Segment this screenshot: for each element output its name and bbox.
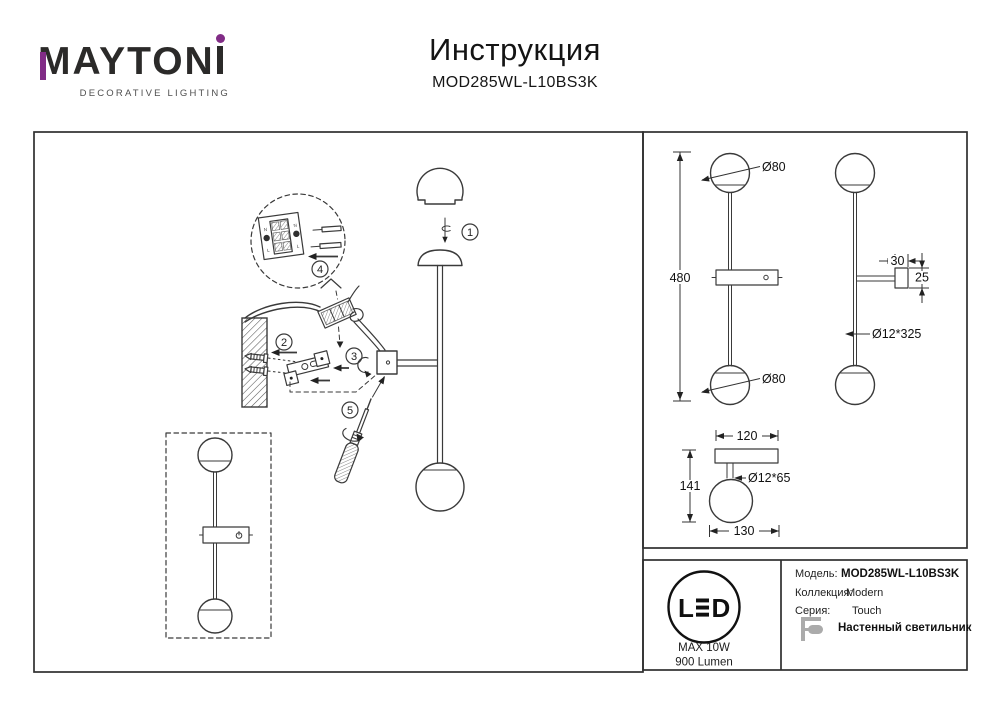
dimension-front-view: 480 Ø80 Ø80 — [666, 152, 786, 405]
collection-row-label: Коллекция: — [795, 587, 853, 599]
dim-rod-label: Ø12*325 — [872, 327, 921, 341]
dimension-side-view: 30 25 Ø12*325 — [836, 154, 932, 405]
dim-stem-label: Ø12*65 — [748, 471, 790, 485]
model-row-value: MOD285WL-L10BS3K — [841, 568, 960, 580]
bracket-slide-path — [290, 374, 377, 392]
led-letter-e-bars — [696, 599, 709, 617]
series-row-value: Touch — [852, 605, 881, 617]
dim-height-label: 480 — [670, 271, 691, 285]
wire-stripped-2 — [311, 242, 341, 249]
wall-lamp-icon — [801, 617, 823, 641]
dim-sphere-top-label: Ø80 — [762, 160, 786, 174]
rotate-lock-icon — [358, 358, 372, 378]
step-1-label: 1 — [467, 227, 473, 239]
lamp-shade-drawing — [417, 168, 463, 204]
collection-row-value: Modern — [846, 587, 883, 599]
model-row-label: Модель: — [795, 568, 838, 580]
max-power-label: MAX 10W — [678, 642, 730, 654]
rotate-shade-icon — [442, 218, 450, 243]
step-4-label: 4 — [317, 264, 323, 276]
step-5-label: 5 — [347, 405, 353, 417]
wall-section — [242, 318, 298, 407]
step-1-badge: 1 — [462, 224, 478, 240]
product-type-label: Настенный светильник — [838, 622, 972, 634]
dim-box-width-label: 30 — [891, 254, 905, 268]
terminal-n-label: N — [264, 227, 268, 232]
led-letter-d: D — [712, 593, 731, 623]
dim-plate-width-label: 120 — [737, 429, 758, 443]
product-info-table: Модель: MOD285WL-L10BS3K Коллекция: Mode… — [795, 568, 972, 641]
led-letter-l: L — [678, 593, 694, 623]
instruction-sheet-drawing: 1 — [0, 0, 1000, 707]
step-3-label: 3 — [351, 351, 357, 363]
lamp-body-drawing — [377, 250, 464, 511]
step-2-label: 2 — [281, 337, 287, 349]
series-row-label: Серия: — [795, 605, 830, 617]
step-5-badge: 5 — [342, 402, 358, 418]
finished-lamp-preview — [166, 433, 271, 638]
dim-base-depth-label: 130 — [734, 524, 755, 538]
luminous-flux-label: 900 Lumen — [675, 657, 733, 669]
assembly-diagram: 1 — [166, 168, 478, 638]
led-badge: L D MAX 10W 900 Lumen — [669, 572, 740, 669]
dimension-plan-view: 120 Ø12*65 141 130 — [679, 429, 790, 538]
dim-sphere-bottom-label: Ø80 — [762, 372, 786, 386]
dim-box-depth-label: 25 — [915, 271, 929, 285]
terminal-n-label-2: N — [293, 223, 297, 228]
step-2-badge: 2 — [276, 334, 292, 350]
step-4-badge: 4 — [312, 261, 328, 277]
wire-stripped-1 — [313, 226, 341, 233]
dim-depth-label: 141 — [680, 479, 701, 493]
terminal-detail-bubble: N L N L 4 — [251, 194, 345, 288]
bubble-pointer — [321, 279, 341, 288]
terminal-plate-detail: N L N L — [258, 212, 303, 259]
step-3-badge: 3 — [346, 348, 362, 364]
